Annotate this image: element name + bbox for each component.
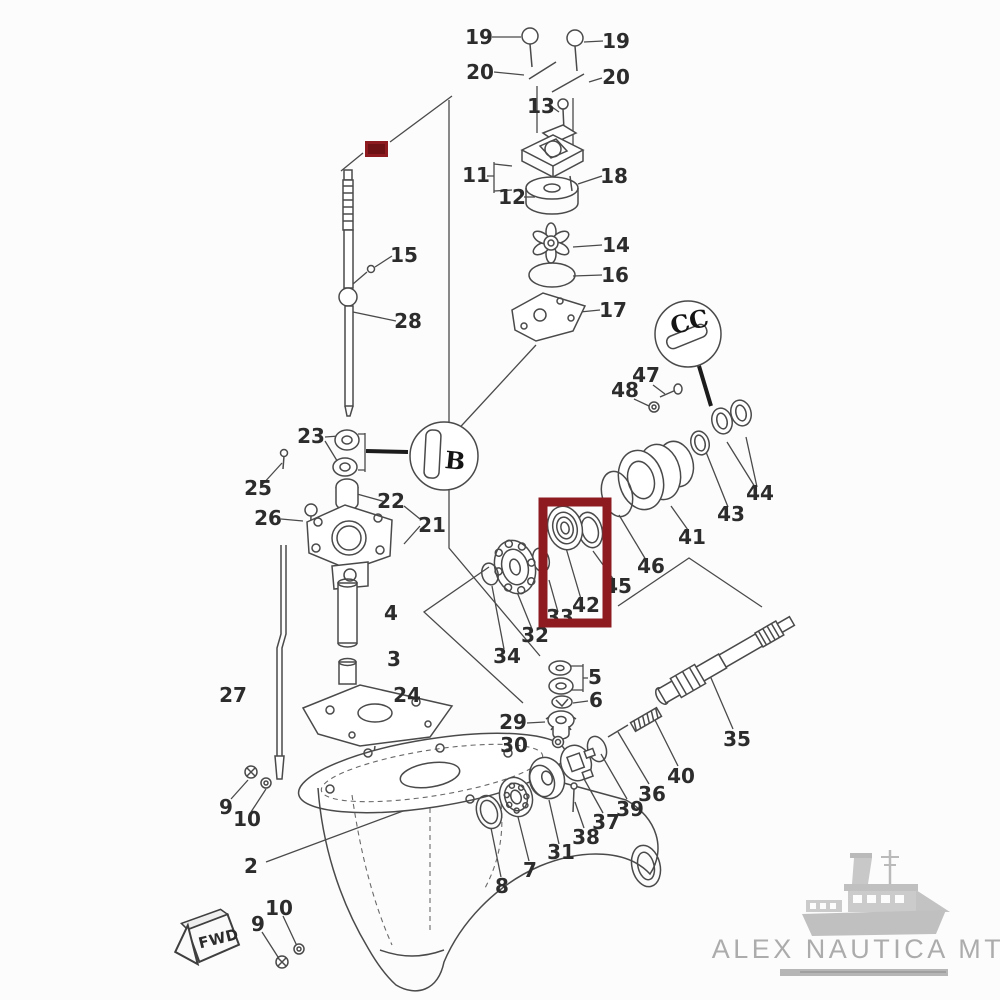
- part-36-pin: [608, 725, 628, 737]
- part-6-clip: [552, 696, 572, 708]
- part-35-prop-shaft: [652, 611, 797, 708]
- part-30-nut: [553, 737, 564, 748]
- part-9-10-bolts-top: [245, 766, 271, 788]
- brand-logo: ALEX NAUTICA MT: [712, 850, 1000, 976]
- part-label-11: 11: [462, 163, 490, 187]
- part-label-38: 38: [572, 825, 600, 849]
- diagram-artwork: B: [0, 0, 1000, 1000]
- parts-diagram-page: B: [0, 0, 1000, 1000]
- brand-name: ALEX NAUTICA MT: [712, 934, 1000, 964]
- part-21-housing: [307, 505, 392, 589]
- part-label-43: 43: [717, 502, 745, 526]
- part-label-23: 23: [297, 424, 325, 448]
- grease-b-glyph: B: [444, 445, 467, 476]
- part-label-41: 41: [678, 525, 706, 549]
- part-label-42: 42: [572, 593, 600, 617]
- part-label-9: 9: [219, 795, 233, 819]
- part-15-pin: [368, 266, 375, 273]
- grease-cc-icon: CC: [655, 301, 721, 367]
- part-label-4: 4: [384, 601, 398, 625]
- part-label-14: 14: [602, 233, 630, 257]
- part-label-29: 29: [499, 710, 527, 734]
- part-11-pump-housing: [522, 125, 583, 177]
- part-47-bolt: [660, 384, 682, 397]
- part-label-5: 5: [588, 665, 602, 689]
- part-label-40: 40: [667, 764, 695, 788]
- fwd-arrow: FWD: [169, 907, 243, 968]
- part-label-28: 28: [394, 309, 422, 333]
- part-label-20: 20: [602, 65, 630, 89]
- part-label-13: 13: [527, 94, 555, 118]
- grease-callout-line-cc: [699, 366, 711, 406]
- part-label-30: 30: [500, 733, 528, 757]
- part-label-24: 24: [393, 683, 421, 707]
- part-label-25: 25: [244, 476, 272, 500]
- part-label-8: 8: [495, 874, 509, 898]
- part-4-sleeve: [338, 579, 357, 647]
- part-label-15: 15: [390, 243, 418, 267]
- part-label-27: 27: [219, 683, 247, 707]
- part-27-shift-rod: [275, 545, 286, 779]
- grease-b-icon: B: [410, 422, 478, 490]
- part-label-19: 19: [602, 29, 630, 53]
- part-label-31: 31: [547, 840, 575, 864]
- part-label-46: 46: [637, 554, 665, 578]
- part-29-gear: [546, 711, 576, 739]
- highlight-rect-part1: [365, 141, 388, 157]
- part-label-39: 39: [616, 797, 644, 821]
- part-25-pin: [281, 450, 288, 470]
- part-16-oring: [529, 263, 575, 287]
- part-28-driveshaft: [339, 170, 357, 416]
- part-43-spacer: [688, 429, 712, 457]
- part-9-10-bolts-bottom: [276, 944, 304, 968]
- part-label-26: 26: [254, 506, 282, 530]
- part-14-impeller: [531, 223, 571, 263]
- part-label-34: 34: [493, 644, 521, 668]
- part-48-washer: [649, 402, 659, 412]
- part-label-44: 44: [746, 481, 774, 505]
- part-44-seals: [709, 398, 754, 436]
- part-label-48: 48: [611, 378, 639, 402]
- part-label-19: 19: [465, 25, 493, 49]
- part-label-7: 7: [523, 858, 537, 882]
- part-label-16: 16: [601, 263, 629, 287]
- part-2-gearcase: [293, 718, 664, 991]
- part-label-10: 10: [265, 896, 293, 920]
- part-label-21: 21: [418, 513, 446, 537]
- part-label-35: 35: [723, 727, 751, 751]
- boat-icon: [802, 850, 950, 936]
- part-label-18: 18: [600, 164, 628, 188]
- part-label-3: 3: [387, 647, 401, 671]
- part-40-spring: [631, 708, 662, 732]
- part-5-washers: [549, 661, 573, 694]
- part-23-bushings: [333, 430, 359, 476]
- part-42-bearing: [543, 502, 587, 553]
- part-label-10: 10: [233, 807, 261, 831]
- part-label-17: 17: [599, 298, 627, 322]
- part-label-22: 22: [377, 489, 405, 513]
- part-3-bushing: [339, 659, 356, 685]
- part-38-pin: [571, 783, 577, 812]
- part-17-plate: [512, 293, 585, 341]
- part-label-9: 9: [251, 912, 265, 936]
- part-41-bearing-carrier: [612, 437, 698, 514]
- grease-callout-line-b: [366, 451, 408, 452]
- part-label-20: 20: [466, 60, 494, 84]
- part-label-12: 12: [498, 185, 526, 209]
- part-label-6: 6: [589, 688, 603, 712]
- part-label-2: 2: [244, 854, 258, 878]
